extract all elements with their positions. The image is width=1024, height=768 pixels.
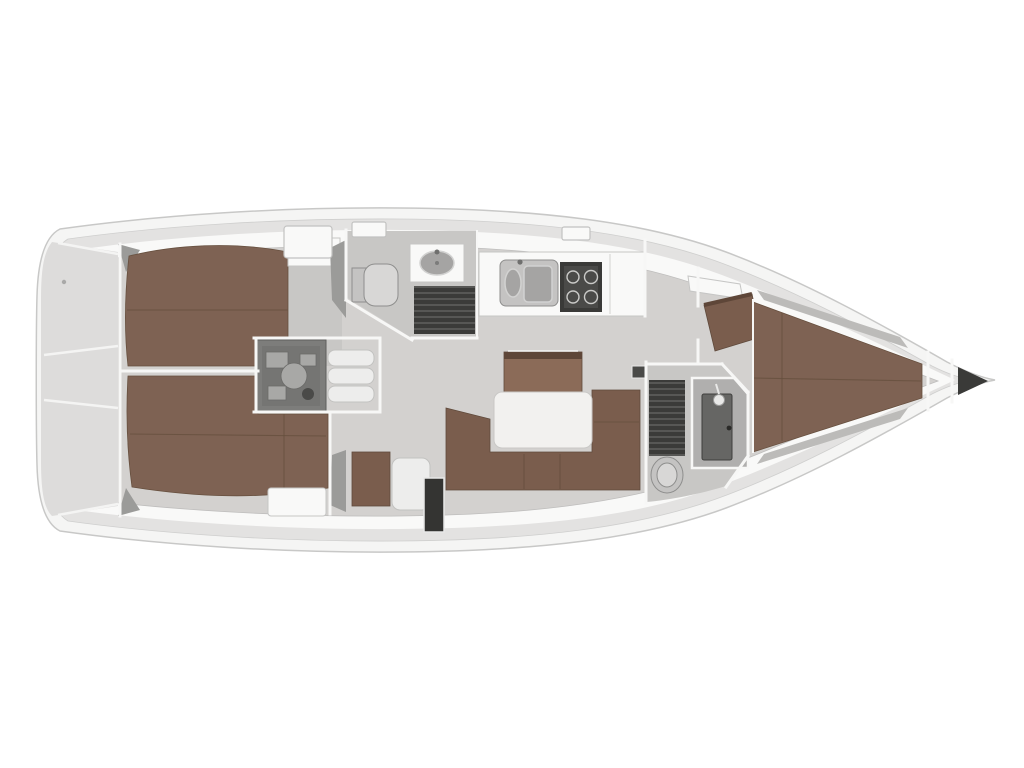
chain-locker <box>958 367 988 395</box>
companionway-step <box>328 350 374 366</box>
transom-fitting <box>62 280 66 284</box>
yacht-floorplan <box>0 0 1024 768</box>
salon-cabinet <box>352 452 390 506</box>
companionway-steps <box>328 350 374 402</box>
engine-part <box>302 388 314 400</box>
sink-basin-square <box>524 266 552 302</box>
toilet-bowl <box>657 463 677 487</box>
shower-grating-forward <box>649 380 685 456</box>
companionway-step <box>328 368 374 384</box>
engine-part <box>268 386 286 400</box>
shower-grating-aft <box>414 286 475 334</box>
engine-compartment <box>256 340 326 412</box>
transom-panel-area <box>41 242 118 516</box>
toilet-aft <box>364 264 398 306</box>
engine-pulley <box>281 363 307 389</box>
head-corner-locker <box>632 366 646 378</box>
deck-hatch <box>352 222 386 237</box>
galley <box>479 252 645 316</box>
companionway-hatch <box>284 226 332 258</box>
door-handle-icon <box>727 426 732 431</box>
faucet-icon <box>517 259 522 264</box>
deck-hatch <box>562 227 590 240</box>
engine-part <box>300 354 316 366</box>
sideboard-top-edge <box>504 352 582 359</box>
drain-icon <box>435 261 439 265</box>
showerhead-icon <box>714 395 725 406</box>
aft-cabin-port-locker <box>268 488 326 516</box>
faucet-icon <box>435 250 440 255</box>
dining-table <box>494 392 592 448</box>
sink-basin-round <box>505 269 521 297</box>
engine-part <box>266 352 288 368</box>
companionway-step <box>328 386 374 402</box>
cabin-corner-brace <box>330 450 346 512</box>
wet-locker <box>424 478 444 532</box>
yacht-floorplan-canvas <box>0 0 1024 768</box>
